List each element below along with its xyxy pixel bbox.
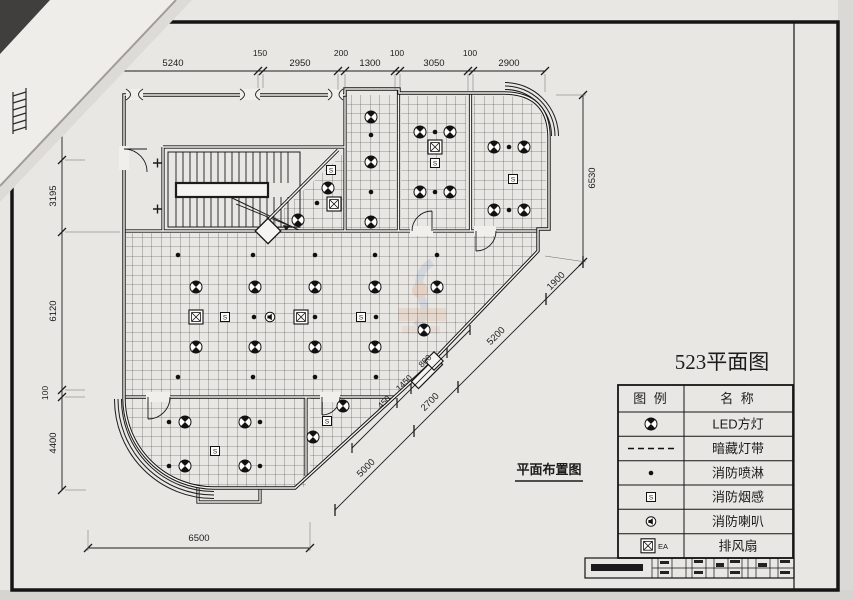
dim-label: 6530 bbox=[587, 167, 598, 188]
legend-header-symbol: 图 例 bbox=[633, 391, 669, 406]
dim-label: 6500 bbox=[188, 533, 209, 544]
dim-label: 2950 bbox=[289, 58, 310, 69]
scanned-floor-plan-sheet: S bbox=[0, 0, 853, 600]
legend-row-name: 排风扇 bbox=[718, 538, 757, 553]
dim-label: 100 bbox=[390, 48, 404, 58]
legend-row-name: 消防烟感 bbox=[712, 490, 764, 505]
dim-label: 200 bbox=[334, 48, 348, 58]
legend-row-name: 消防喷淋 bbox=[712, 465, 764, 480]
dim-label: 4400 bbox=[48, 432, 59, 453]
legend-row-name: LED方灯 bbox=[712, 417, 763, 432]
dim-label: 100 bbox=[40, 386, 50, 400]
dim-label: 3050 bbox=[423, 58, 444, 69]
dim-label: 2900 bbox=[498, 58, 519, 69]
legend-row-name: 暗藏灯带 bbox=[712, 441, 764, 456]
paper-edge-right bbox=[838, 0, 853, 600]
legend-row-name: 消防喇叭 bbox=[712, 514, 764, 529]
floor-plan-drawing: S bbox=[0, 0, 853, 600]
dim-label: 3195 bbox=[48, 185, 59, 206]
plan-label-text: 平面布置图 bbox=[516, 462, 581, 477]
exhaust-fan-icon bbox=[641, 539, 655, 553]
dim-label: 1300 bbox=[359, 58, 380, 69]
legend-header-name: 名 称 bbox=[720, 391, 756, 406]
exhaust-fan-tag: EA bbox=[658, 542, 668, 551]
fire-horns bbox=[265, 312, 275, 322]
dim-label: 6120 bbox=[48, 300, 59, 321]
dim-label: 150 bbox=[253, 48, 267, 58]
dim-label: 5240 bbox=[162, 58, 183, 69]
fire-sprinkler-icon bbox=[649, 471, 654, 476]
dim-label: 100 bbox=[463, 48, 477, 58]
fire-horn-icon bbox=[646, 517, 656, 527]
sheet-title: 523平面图 bbox=[675, 350, 770, 374]
smoke-detector-icon bbox=[647, 493, 656, 502]
title-block-logo bbox=[591, 564, 643, 571]
